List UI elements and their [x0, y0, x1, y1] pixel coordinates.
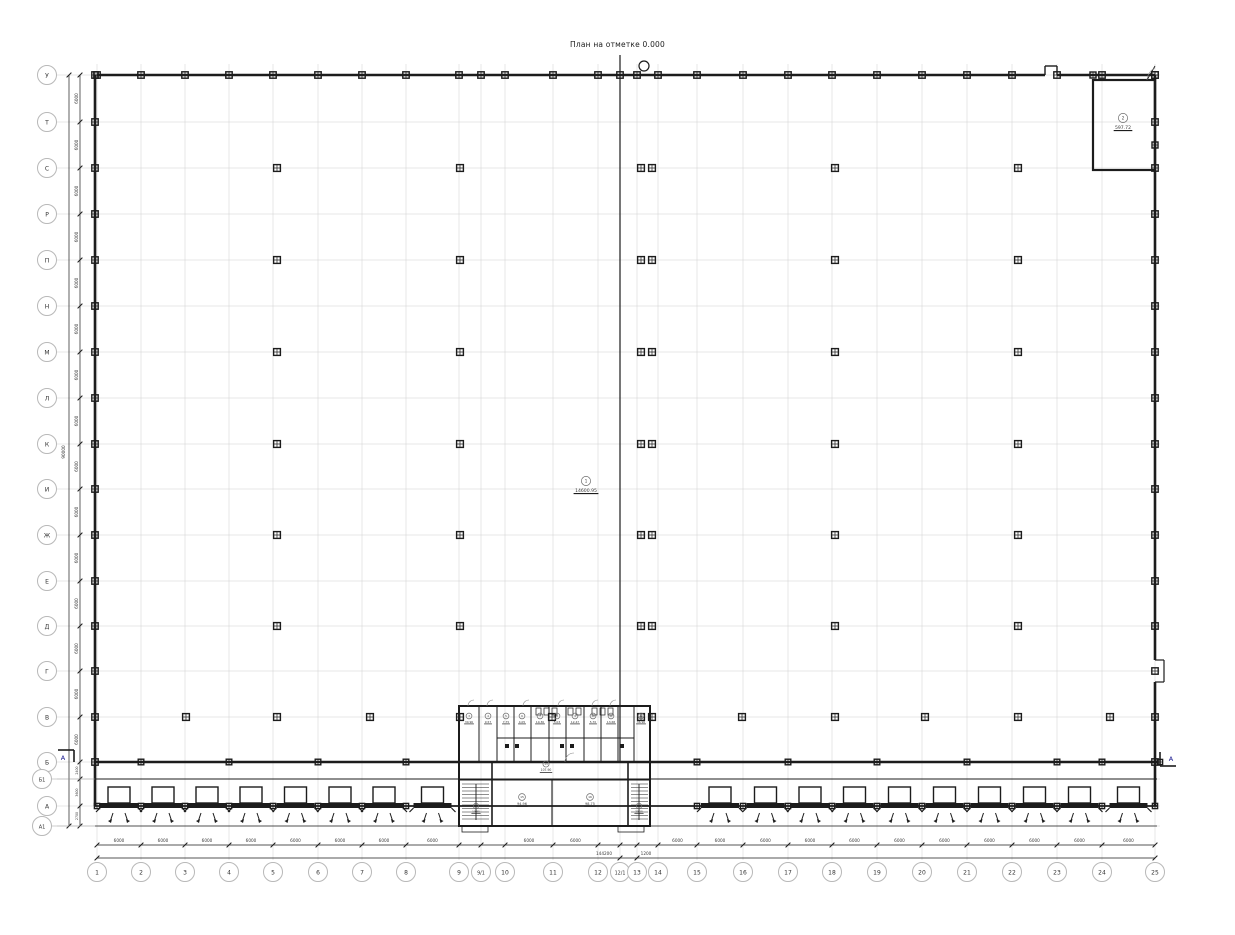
bay-dim: 6000: [984, 838, 995, 843]
dock-arrowhead: [329, 819, 333, 823]
axis-number: 22: [1008, 869, 1016, 876]
axis-bubble: 1: [88, 863, 107, 882]
column-marker: [617, 72, 623, 78]
bay-dim: 6000: [715, 838, 726, 843]
bay-dim: 6000: [335, 838, 346, 843]
small-room-label: 64.05: [518, 713, 526, 724]
room-area: 30.96: [465, 720, 473, 724]
column-marker: [638, 257, 645, 264]
room-area: 9.57: [485, 720, 492, 724]
column-marker: [694, 72, 700, 78]
dock-pad: [881, 803, 919, 808]
dock-pad: [701, 803, 739, 808]
axis-bubble: С: [38, 159, 57, 178]
column-marker: [694, 759, 700, 765]
dock-arrowhead: [152, 819, 156, 823]
loading-dock: [228, 787, 274, 823]
dock-arrowhead: [373, 819, 377, 823]
row-dim: 6000: [74, 323, 79, 334]
bay-dim: 6000: [672, 838, 683, 843]
room-number: 11: [609, 714, 613, 718]
column-marker: [478, 72, 484, 78]
column-marker: [829, 72, 835, 78]
axis-number: 23: [1053, 869, 1061, 876]
dock-pad: [1061, 803, 1099, 808]
column-marker: [1099, 803, 1104, 808]
hall-label: 114600.95: [574, 476, 599, 493]
column-marker: [270, 72, 276, 78]
dock-arrowhead: [285, 819, 289, 823]
dock-shelter: [755, 787, 777, 803]
axis-bubble: 4: [220, 863, 239, 882]
small-room-label: 49.57: [484, 713, 492, 724]
dock-shelter: [422, 787, 444, 803]
dock-shelter: [799, 787, 821, 803]
dock-arrowhead: [1136, 819, 1140, 823]
dock-hook: [1148, 808, 1152, 812]
column-marker: [1152, 532, 1158, 538]
column-marker: [595, 72, 601, 78]
dock-pad: [1110, 803, 1148, 808]
dock-arrowhead: [214, 819, 218, 823]
axis-letter: А1: [39, 824, 46, 830]
dock-shelter: [329, 787, 351, 803]
loading-dock: [1057, 787, 1103, 823]
dock-arrowhead: [817, 819, 821, 823]
column-marker: [138, 72, 144, 78]
axis-bubble: А: [38, 797, 57, 816]
floor-plan-canvas: 114600.952597.72330.9649.5757.7564.05710…: [0, 0, 1235, 935]
column-marker: [457, 623, 464, 630]
column-marker: [829, 803, 834, 808]
column-marker: [1015, 532, 1022, 539]
axis-bubble: 8: [397, 863, 416, 882]
loading-dock: [361, 787, 407, 823]
dock-shelter: [709, 787, 731, 803]
axis-bubble: К: [38, 435, 57, 454]
bottom-axis-circles: 1234567899/110111212/1131415161718192021…: [88, 863, 1165, 882]
row-dim-small: 3600: [75, 788, 79, 796]
column-marker: [457, 165, 464, 172]
loading-dock: [317, 787, 363, 823]
axis-number: 6: [316, 869, 320, 876]
column-marker: [1009, 803, 1014, 808]
dock-shelter: [240, 787, 262, 803]
column-marker: [638, 532, 645, 539]
room-number: 15: [520, 795, 524, 799]
axis-letter: У: [45, 72, 49, 79]
room-area: 36.96: [637, 720, 645, 724]
axis-number: 4: [227, 869, 231, 876]
bay-dim: 6000: [760, 838, 771, 843]
bay-dim: 6000: [805, 838, 816, 843]
column-marker: [226, 759, 232, 765]
building-walls: [95, 55, 1164, 826]
column-marker: [832, 623, 839, 630]
room-number: 14: [474, 805, 478, 808]
dock-arrowhead: [755, 819, 759, 823]
column-marker: [638, 623, 645, 630]
axis-bubble: 14: [649, 863, 668, 882]
column-marker: [919, 803, 924, 808]
loading-dock: [922, 787, 968, 823]
axis-bubble: 11: [544, 863, 563, 882]
row-dim: 6000: [74, 277, 79, 288]
column-marker: [359, 72, 365, 78]
small-room-label: 330.96: [464, 713, 474, 724]
column-marker: [226, 72, 232, 78]
axis-bubble: 24: [1093, 863, 1112, 882]
dock-arrowhead: [1087, 819, 1091, 823]
dock-arrowhead: [979, 819, 983, 823]
small-room-label: 105.70: [589, 713, 597, 724]
dock-arrowhead: [1024, 819, 1028, 823]
bay-dim: 6000: [158, 838, 169, 843]
column-marker: [457, 532, 464, 539]
bay-dim: 6000: [1123, 838, 1134, 843]
room-label: 1698.75: [584, 794, 596, 807]
dock-shelter: [1069, 787, 1091, 803]
dock-shelter: [1118, 787, 1140, 803]
axis-bubble: 12: [589, 863, 608, 882]
bay-dim: 6000: [1074, 838, 1085, 843]
axis-letter: Ж: [44, 532, 51, 539]
dock-shelter: [196, 787, 218, 803]
room-label: 1594.96: [516, 794, 528, 807]
column-marker: [638, 441, 645, 448]
dock-shelter: [108, 787, 130, 803]
column-marker: [1152, 578, 1158, 584]
service-block-upper: 330.9649.5757.7564.05710.3685.03912.4710…: [459, 700, 650, 762]
room-area: 94.96: [517, 802, 527, 806]
room-area: 7.75: [503, 720, 510, 724]
column-marker: [1152, 72, 1158, 78]
row-dim: 6000: [74, 231, 79, 242]
dock-arrowhead: [934, 819, 938, 823]
room-number: 5: [505, 714, 507, 718]
room-area: 13.68: [607, 720, 615, 724]
dock-arrowhead: [889, 819, 893, 823]
axis-number: 8: [404, 869, 408, 876]
column-marker: [274, 532, 281, 539]
dock-pad: [926, 803, 964, 808]
column-marker: [874, 759, 880, 765]
sink-fixture: [560, 744, 564, 748]
axis-letter: Л: [45, 395, 50, 402]
room-number: 4: [487, 714, 489, 718]
axis-number: 24: [1098, 869, 1106, 876]
sink-fixture: [505, 744, 509, 748]
column-marker: [502, 72, 508, 78]
overall-width-dim: 144200: [596, 851, 612, 856]
column-marker: [964, 759, 970, 765]
axis-bubble: 15: [688, 863, 707, 882]
room-area: 10.36: [536, 720, 544, 724]
axis-number: 25: [1151, 869, 1159, 876]
axis-letter: И: [45, 486, 50, 493]
column-marker: [922, 714, 929, 721]
dock-arrowhead: [108, 819, 112, 823]
column-marker: [1152, 714, 1158, 720]
axis-bubble: 20: [913, 863, 932, 882]
bay-dim: 6000: [894, 838, 905, 843]
dock-arrowhead: [391, 819, 395, 823]
column-marker: [649, 257, 656, 264]
axis-bubble: 2: [132, 863, 151, 882]
column-marker: [359, 803, 364, 808]
column-marker: [403, 803, 408, 808]
column-marker: [274, 165, 281, 172]
column-marker: [655, 72, 661, 78]
axis-bubble: И: [38, 480, 57, 499]
dock-arrowhead: [709, 819, 713, 823]
dock-arrowhead: [440, 819, 444, 823]
dock-hook: [1106, 808, 1110, 812]
column-marker: [315, 759, 321, 765]
room-number: 6: [521, 714, 523, 718]
dock-pad: [1016, 803, 1054, 808]
sink-fixture: [515, 744, 519, 748]
bay-dim: 6000: [202, 838, 213, 843]
small-room-label: 85.03: [553, 713, 561, 724]
room-number: 10: [591, 714, 595, 718]
column-marker: [1054, 759, 1060, 765]
columns: [92, 72, 1158, 809]
column-marker: [649, 349, 656, 356]
axis-bubble: Е: [38, 572, 57, 591]
column-marker: [1152, 257, 1158, 263]
axis-bubble: 7: [353, 863, 372, 882]
column-marker: [1099, 759, 1105, 765]
column-marker: [874, 803, 879, 808]
axis-number: 1: [95, 869, 99, 876]
room-number: 1: [585, 478, 588, 483]
room-number: 8: [556, 714, 558, 718]
joint-bay-dim: 1200: [641, 851, 652, 856]
axis-bubble: 6: [309, 863, 328, 882]
dock-arrowhead: [907, 819, 911, 823]
column-marker: [1152, 349, 1158, 355]
column-marker: [919, 72, 925, 78]
axis-bubble: 21: [958, 863, 977, 882]
room-area: 98.75: [585, 802, 595, 806]
axis-bubble: 12/1: [611, 863, 630, 882]
axis-letter: Г: [45, 668, 49, 675]
room-area: 12.47: [571, 720, 579, 724]
axis-number: 10: [501, 869, 509, 876]
column-marker: [1099, 72, 1105, 78]
row-dim: 6000: [74, 688, 79, 699]
axis-bubble: Т: [38, 113, 57, 132]
axis-number: 13: [633, 869, 641, 876]
column-marker: [1152, 303, 1158, 309]
bay-dim: 6000: [1029, 838, 1040, 843]
axis-bubble: 10: [496, 863, 515, 882]
bay-dim: 6000: [849, 838, 860, 843]
column-marker: [638, 349, 645, 356]
loading-dock: [967, 787, 1013, 823]
dock-pad: [144, 803, 182, 808]
dock-arrowhead: [997, 819, 1001, 823]
axis-number: 14: [654, 869, 662, 876]
column-marker: [274, 349, 281, 356]
row-dim-small: 2400: [75, 766, 79, 774]
dock-arrowhead: [258, 819, 262, 823]
loading-dock: [410, 787, 456, 823]
axis-letter: П: [45, 257, 50, 264]
room-area: 5.70: [590, 720, 597, 724]
column-marker: [1090, 72, 1096, 78]
axis-bubble: 23: [1048, 863, 1067, 882]
roof-funnel: [639, 61, 649, 71]
dock-pad: [188, 803, 226, 808]
column-marker: [1054, 803, 1059, 808]
dock-hook: [410, 808, 414, 812]
column-marker: [832, 532, 839, 539]
row-dim: 6000: [74, 552, 79, 563]
axis-bubble: 25: [1146, 863, 1165, 882]
column-marker: [457, 441, 464, 448]
axis-bubble: 19: [868, 863, 887, 882]
column-marker: [649, 623, 656, 630]
column-marker: [315, 803, 320, 808]
column-marker: [1152, 486, 1158, 492]
column-marker: [1152, 623, 1158, 629]
column-marker: [649, 165, 656, 172]
room-number: 13: [544, 762, 548, 766]
row-dim: 6000: [74, 506, 79, 517]
axis-number: 17: [784, 869, 792, 876]
axis-bubble: В: [38, 708, 57, 727]
axis-bubble: А1: [33, 817, 96, 836]
axis-bubble: 16: [734, 863, 753, 882]
dock-shelter: [152, 787, 174, 803]
room-area: 4.05: [519, 720, 526, 724]
dock-arrowhead: [773, 819, 777, 823]
loading-dock: [1106, 787, 1152, 823]
column-marker: [274, 714, 281, 721]
axis-bubble: 18: [823, 863, 842, 882]
dock-arrowhead: [952, 819, 956, 823]
column-marker: [832, 165, 839, 172]
bay-dim: 6000: [290, 838, 301, 843]
row-dim: 6000: [74, 734, 79, 745]
dock-pad: [100, 803, 138, 808]
column-marker: [270, 803, 275, 808]
wc-fixture: [568, 708, 573, 715]
column-marker: [1152, 441, 1158, 447]
column-marker: [649, 532, 656, 539]
dock-pad: [321, 803, 359, 808]
row-dim: 6000: [74, 643, 79, 654]
room-number: 2: [1122, 115, 1125, 120]
axis-letter: М: [44, 349, 49, 356]
room-area: 20.15: [635, 809, 643, 813]
sink-fixture: [570, 744, 574, 748]
column-marker: [638, 165, 645, 172]
axis-number: 11: [549, 869, 557, 876]
dock-arrowhead: [422, 819, 426, 823]
dock-arrowhead: [844, 819, 848, 823]
dock-arrowhead: [727, 819, 731, 823]
axis-letter: Н: [45, 303, 50, 310]
small-room-label: 57.75: [502, 713, 510, 724]
axis-bubble: 13: [628, 863, 647, 882]
column-marker: [832, 349, 839, 356]
dock-shelter: [285, 787, 307, 803]
column-marker: [1015, 623, 1022, 630]
axis-bubble: Н: [38, 297, 57, 316]
row-dim: 6000: [74, 139, 79, 150]
room-area: 597.72: [1115, 125, 1131, 131]
dock-arrowhead: [170, 819, 174, 823]
loading-dock: [787, 787, 833, 823]
axis-number: 15: [693, 869, 701, 876]
column-marker: [226, 803, 231, 808]
room-number: 16: [588, 795, 592, 799]
bay-dim: 6000: [570, 838, 581, 843]
axis-bubble: 9/1: [472, 863, 491, 882]
column-marker: [1015, 257, 1022, 264]
column-marker: [964, 72, 970, 78]
axis-bubble: Б: [38, 753, 57, 772]
axis-number: 3: [183, 869, 187, 876]
row-dim: 6000: [74, 369, 79, 380]
axis-letter: В: [45, 714, 49, 721]
dock-pad: [791, 803, 829, 808]
overall-height-dim: 90000: [61, 445, 66, 459]
bay-dim: 6000: [114, 838, 125, 843]
column-marker: [315, 72, 321, 78]
axis-number: 19: [873, 869, 881, 876]
column-marker: [785, 72, 791, 78]
dock-arrowhead: [196, 819, 200, 823]
loading-dock: [697, 787, 743, 823]
dock-pad: [747, 803, 785, 808]
column-marker: [739, 714, 746, 721]
room-number: 3: [468, 714, 470, 718]
dock-pad: [277, 803, 315, 808]
column-marker: [183, 714, 190, 721]
dock-shelter: [889, 787, 911, 803]
entrance-block-outline: [459, 762, 650, 826]
axis-bubble: У: [38, 66, 57, 85]
column-marker: [138, 803, 143, 808]
loading-dock: [140, 787, 186, 823]
column-marker: [138, 759, 144, 765]
axis-number: 9: [457, 869, 461, 876]
axis-number: 18: [828, 869, 836, 876]
axis-number: 7: [360, 869, 364, 876]
dock-pad: [971, 803, 1009, 808]
dock-arrowhead: [126, 819, 130, 823]
dock-arrowhead: [1069, 819, 1073, 823]
column-marker: [694, 803, 699, 808]
left-dimensions: 9000060006000600060006000600060006000600…: [61, 73, 82, 829]
column-marker: [456, 72, 462, 78]
column-marker: [964, 803, 969, 808]
column-marker: [182, 803, 187, 808]
row-dim: 6000: [74, 185, 79, 196]
axis-bubble: Р: [38, 205, 57, 224]
axis-number: 21: [963, 869, 971, 876]
axis-letter: Р: [45, 211, 49, 218]
axis-bubble: П: [38, 251, 57, 270]
small-room-label: 1113.68: [606, 713, 616, 724]
axis-number: 12: [594, 869, 602, 876]
axis-number: 2: [139, 869, 143, 876]
corner-room: 2597.72: [1090, 66, 1158, 170]
